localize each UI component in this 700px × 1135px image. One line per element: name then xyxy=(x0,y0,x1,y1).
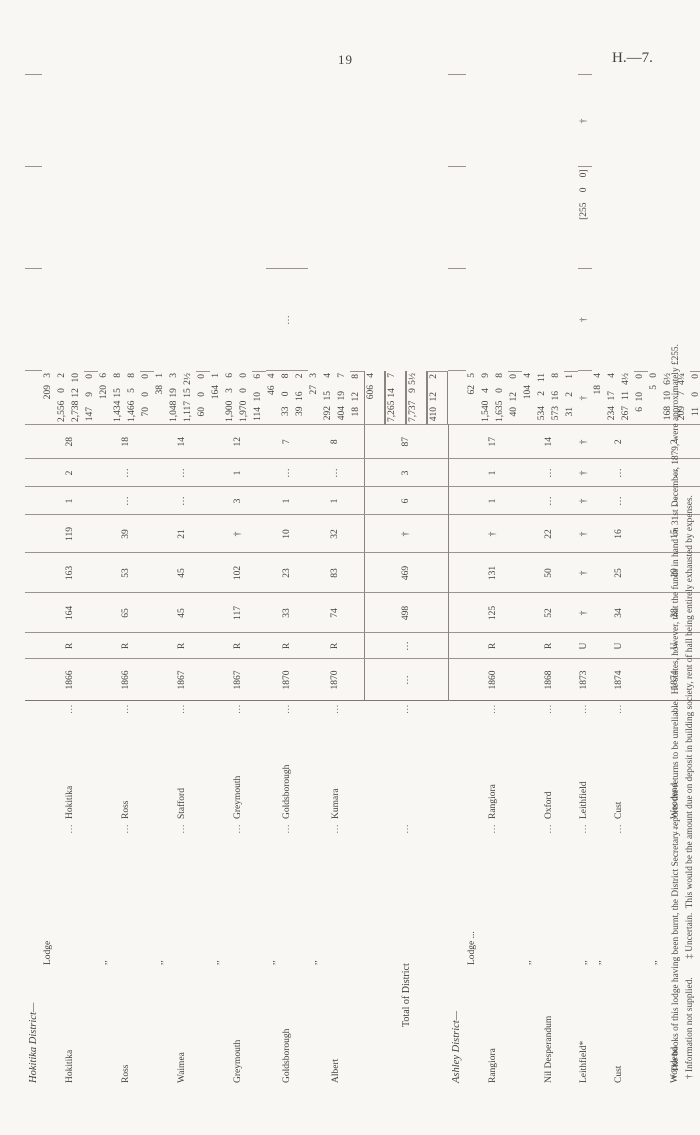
cell: Leithfield*,, xyxy=(578,837,592,1085)
amount-part: 19 xyxy=(336,391,350,406)
cell: 1870 xyxy=(266,659,308,701)
cell: 7,265147 xyxy=(385,371,406,425)
cell: 273 xyxy=(308,371,322,425)
amount-part: 7 xyxy=(336,373,350,391)
amount-part: 10 xyxy=(252,392,266,407)
cell: Cust xyxy=(592,717,648,821)
cell: … xyxy=(308,701,364,717)
cell: 45 xyxy=(154,593,210,633)
amount-part: 104 xyxy=(522,385,536,422)
footnote-symbols: † Information not supplied. ‡ Uncertain.… xyxy=(685,495,695,1079)
cell: 12 xyxy=(210,425,266,459)
cell: 381 xyxy=(154,371,168,425)
footnote-burnt-books: * The books of this lodge having been bu… xyxy=(671,344,681,1079)
amount-part: 404 xyxy=(336,406,350,422)
lodge-row: Ross,,…Ross…1866R655339……1812061,4341581… xyxy=(98,75,154,1085)
cell: 2 xyxy=(42,459,98,487)
cell: Albert,, xyxy=(308,837,364,1085)
cell: Leithfield xyxy=(578,717,592,821)
cell xyxy=(25,371,42,425)
lodge-row: HokitikaLodge…Hokitika…1866R164163119122… xyxy=(42,75,98,1085)
cell xyxy=(25,167,42,269)
cell: Hokitika District— xyxy=(25,837,42,1085)
amount-part: 6 xyxy=(252,374,266,392)
cell: 1860 xyxy=(466,659,522,701)
cell: 3 xyxy=(210,487,266,515)
cell xyxy=(25,701,42,717)
amount-part: 0 xyxy=(578,188,592,203)
cell: … xyxy=(592,487,648,515)
cell: Ross xyxy=(98,717,154,821)
cell: 33 xyxy=(266,593,308,633)
cell xyxy=(448,659,466,701)
amount-part: 4 xyxy=(266,374,280,386)
amount-part: 2 xyxy=(536,391,550,406)
cell: 3121 xyxy=(564,371,578,425)
amount-part: 7,737 xyxy=(407,401,426,422)
cell: 28 xyxy=(42,425,98,459)
lodge-name-suffix: Lodge ... xyxy=(466,931,479,965)
cell: 1866 xyxy=(98,659,154,701)
amount-part: 46 xyxy=(266,386,280,423)
amount-part: 4 xyxy=(606,373,620,391)
amount-part: 0 xyxy=(648,373,662,385)
amount-part: 9 xyxy=(84,392,98,407)
cell: 39 xyxy=(98,515,154,553)
amount-part: 0 xyxy=(494,388,508,401)
cell: 6000 xyxy=(196,371,210,425)
cell xyxy=(448,821,466,837)
cell: U xyxy=(592,633,648,659)
cell: † xyxy=(578,75,592,167)
cell: † xyxy=(466,515,522,553)
amount-part: 60 xyxy=(196,407,210,422)
amount-part: 2 xyxy=(56,373,70,388)
district-header-row: Ashley District— xyxy=(448,75,466,1085)
cell: R xyxy=(308,633,364,659)
cell: 410122 xyxy=(427,371,448,425)
cell: 292154 xyxy=(322,371,336,425)
cell: 74 xyxy=(308,593,364,633)
amount-part: 11 xyxy=(620,391,634,406)
cell: Ross,, xyxy=(98,837,154,1085)
cell xyxy=(25,553,42,593)
cell: … xyxy=(522,821,578,837)
amount-part: 3 xyxy=(308,373,322,385)
cell: 1868 xyxy=(522,659,578,701)
cell: Waimea,, xyxy=(154,837,210,1085)
cell: 7000 xyxy=(140,371,154,425)
cell: 1867 xyxy=(154,659,210,701)
cell: 1,54049 xyxy=(480,371,494,425)
amount-part: 1,970 xyxy=(238,401,252,422)
amount-part: 164 xyxy=(210,385,224,422)
cell: 1866 xyxy=(42,659,98,701)
cell: R xyxy=(466,633,522,659)
cell xyxy=(448,553,466,593)
cell: 1100 xyxy=(690,371,700,425)
cell: 1,46658 xyxy=(126,371,140,425)
cell: 83 xyxy=(308,553,364,593)
cell xyxy=(448,371,466,425)
amount-part: 410 xyxy=(428,407,447,422)
amount-part: 2,738 xyxy=(70,401,84,422)
amount-part: 0 xyxy=(84,374,98,392)
cell: 1870 xyxy=(308,659,364,701)
cell: 1,90036 xyxy=(224,371,238,425)
rotated-table-area: Hokitika District—HokitikaLodge…Hokitika… xyxy=(25,75,700,1085)
cell: 18 xyxy=(98,425,154,459)
lodge-name: Rangiora xyxy=(488,1048,498,1083)
lodge-row: Greymouth,,…Greymouth…1867R117102†311216… xyxy=(210,75,266,1085)
amount-part: 1,048 xyxy=(168,401,182,422)
district-total-row: Total of District…………498469†638760647,26… xyxy=(364,75,448,1085)
lodge-name: Hokitika xyxy=(65,1050,75,1083)
lodge-row: Goldsborough,,…Goldsborough…1870R3323101… xyxy=(266,75,308,1085)
lodge-name-suffix: ,, xyxy=(522,960,535,965)
cell xyxy=(448,717,466,821)
cell xyxy=(448,167,466,269)
lodge-name: Waimea xyxy=(177,1052,187,1083)
lodge-name-suffix: ,, xyxy=(98,960,111,965)
cell xyxy=(448,487,466,515)
amount-part: 8 xyxy=(350,374,364,392)
amount-part: 4 xyxy=(592,373,606,385)
amount-part: 1 xyxy=(564,374,578,392)
document-code: H.—7. xyxy=(612,50,653,67)
lodge-row: Cust,,…Cust…1874U342516……218423417426711… xyxy=(592,75,648,1085)
cell: 184 xyxy=(592,371,606,425)
cell: 16 xyxy=(592,515,648,553)
amount-part: 38 xyxy=(154,385,168,422)
cell: Stafford xyxy=(154,717,210,821)
cell: 6100 xyxy=(634,371,648,425)
cell: 117 xyxy=(210,593,266,633)
cell: † xyxy=(578,487,592,515)
cell: … xyxy=(308,821,364,837)
lodge-row: RangioraLodge ...…Rangiora…1860R125131†1… xyxy=(466,75,522,1085)
cell xyxy=(364,717,448,821)
scanned-document-page: 19 H.—7. Hokitika District—HokitikaLodge… xyxy=(0,0,700,1135)
lodge-row: Nil Desperandum,,…Oxford…1868R525022……14… xyxy=(522,75,578,1085)
cell: † xyxy=(578,459,592,487)
cell: … xyxy=(98,701,154,717)
amount-part: 12 xyxy=(428,392,447,407)
amount-part: 10 xyxy=(634,392,648,407)
cell: R xyxy=(522,633,578,659)
amount-part: 1 xyxy=(210,373,224,385)
amount-part: 27 xyxy=(308,385,322,422)
lodge-name-suffix: ,, xyxy=(648,960,661,965)
cell xyxy=(25,821,42,837)
cell xyxy=(25,75,42,167)
cell: Kumara xyxy=(308,717,364,821)
cell: … xyxy=(42,701,98,717)
cell: † xyxy=(578,553,592,593)
cell: Greymouth xyxy=(210,717,266,821)
cell: 23 xyxy=(266,553,308,593)
cell: R xyxy=(98,633,154,659)
cell: † xyxy=(578,593,592,633)
cell: 234174 xyxy=(606,371,620,425)
cell: 1,63508 xyxy=(494,371,508,425)
cell: … xyxy=(154,701,210,717)
amount-part: 5 xyxy=(466,373,480,385)
amount-part: 0 xyxy=(690,374,700,392)
amount-part: 0 xyxy=(140,374,154,392)
cell: … xyxy=(522,701,578,717)
cell: 1,97000 xyxy=(238,371,252,425)
amount-part: 15 xyxy=(322,391,336,406)
cell xyxy=(448,459,466,487)
cell: 1867 xyxy=(210,659,266,701)
cell: Oxford xyxy=(522,717,578,821)
amount-part: 147 xyxy=(84,407,98,422)
amount-part: 534 xyxy=(536,406,550,422)
cell: HokitikaLodge xyxy=(42,837,98,1085)
amount-part: 4 xyxy=(480,388,494,401)
amount-part: 6 xyxy=(224,373,238,388)
cell: 1873 xyxy=(578,659,592,701)
amount-part: 1,900 xyxy=(224,401,238,422)
cell: … xyxy=(522,459,578,487)
cell: Nil Desperandum,, xyxy=(522,837,578,1085)
amount-part: 267 xyxy=(620,406,634,422)
lodge-name-suffix: ,, xyxy=(578,960,591,965)
cell: 573168 xyxy=(550,371,564,425)
amount-part: 4 xyxy=(322,373,336,391)
amount-part: 4½ xyxy=(620,373,634,391)
cell: 2,55602 xyxy=(56,371,70,425)
cell: † xyxy=(578,269,592,371)
cell: 8 xyxy=(308,425,364,459)
cell: 53 xyxy=(98,553,154,593)
lodge-name-suffix: ,, xyxy=(592,960,605,965)
cell: 1,117152½ xyxy=(182,371,196,425)
amount-part: 114 xyxy=(252,407,266,422)
cell: 114106 xyxy=(252,371,266,425)
cell: 1,048193 xyxy=(168,371,182,425)
cell: 18128 xyxy=(350,371,364,425)
amount-part: 39 xyxy=(294,407,308,423)
amount-part: 8 xyxy=(550,373,564,391)
cell: … xyxy=(266,459,308,487)
cell xyxy=(25,487,42,515)
amount-part: 0 xyxy=(56,388,70,401)
lodge-name: Cust xyxy=(614,1066,624,1083)
cell xyxy=(25,459,42,487)
amount-part: 0 xyxy=(508,374,522,392)
cell: 45 xyxy=(154,553,210,593)
amount-part: 8 xyxy=(280,374,294,392)
district-header-row: Hokitika District— xyxy=(25,75,42,1085)
amount-part: 6 xyxy=(634,407,648,422)
cell: † xyxy=(364,515,448,553)
cell: … xyxy=(466,701,522,717)
cell: … xyxy=(364,701,448,717)
cell: … xyxy=(592,821,648,837)
cell: 14 xyxy=(154,425,210,459)
lodge-name-suffix: ,, xyxy=(308,960,321,965)
amount-part: 2,556 xyxy=(56,401,70,422)
amount-part: 0] xyxy=(578,170,592,188)
cell: … xyxy=(98,487,154,515)
amount-part: 16 xyxy=(294,392,308,407)
lodge-name-suffix: ,, xyxy=(210,960,223,965)
amount-part: 9 xyxy=(407,388,426,401)
cell xyxy=(448,75,466,167)
cell: 50 xyxy=(522,553,578,593)
amount-part: 0 xyxy=(196,374,210,392)
amount-part: 62 xyxy=(466,385,480,422)
amount-part: 573 xyxy=(550,406,564,422)
cell: 65 xyxy=(98,593,154,633)
amount-part: 3 xyxy=(168,373,182,388)
cell: 7 xyxy=(266,425,308,459)
cell: 1874 xyxy=(592,659,648,701)
cell: 40120 xyxy=(508,371,522,425)
cell: 2,7381210 xyxy=(70,371,84,425)
amount-part: 31 xyxy=(564,407,578,422)
cell: 25 xyxy=(592,553,648,593)
amount-part: 3 xyxy=(42,373,56,385)
cell: 1 xyxy=(42,487,98,515)
amount-part: 234 xyxy=(606,406,620,422)
cell: 34 xyxy=(592,593,648,633)
amount-part: 12 xyxy=(350,392,364,407)
amount-part: 6 xyxy=(98,373,112,385)
amount-part: 7,265 xyxy=(386,401,405,422)
amount-part: 2 xyxy=(294,374,308,392)
cell: 87 xyxy=(364,425,448,459)
amount-part: 5 xyxy=(648,385,662,422)
cell: 1044 xyxy=(522,371,536,425)
cell xyxy=(448,593,466,633)
cell: 464 xyxy=(266,372,280,426)
cell: RangioraLodge ... xyxy=(466,837,522,1085)
cell: 32 xyxy=(308,515,364,553)
cell xyxy=(25,593,42,633)
cell: … xyxy=(98,459,154,487)
cell: 1,434158 xyxy=(112,371,126,425)
page-number: 19 xyxy=(338,52,353,68)
cell: 1 xyxy=(210,459,266,487)
cell: … xyxy=(42,821,98,837)
cell: 50 xyxy=(648,371,662,425)
cell: … xyxy=(364,659,448,701)
cell xyxy=(25,633,42,659)
cell: 14790 xyxy=(84,371,98,425)
cell: 52 xyxy=(522,593,578,633)
cell: … xyxy=(266,701,308,717)
cell: 7,73795½ xyxy=(406,371,427,425)
cell: Cust,, xyxy=(592,837,648,1085)
lodges-table-body: Hokitika District—HokitikaLodge…Hokitika… xyxy=(25,75,700,1085)
cell: 3 xyxy=(364,459,448,487)
cell xyxy=(448,515,466,553)
cell: † xyxy=(578,515,592,553)
cell: R xyxy=(42,633,98,659)
amount-part: 2 xyxy=(428,374,447,392)
amount-part: 0 xyxy=(140,392,154,407)
amount-part: 12 xyxy=(70,388,84,401)
cell: [25500] xyxy=(578,168,592,270)
amount-part: 70 xyxy=(140,407,154,422)
amount-part: 8 xyxy=(126,373,140,388)
cell: Goldsborough,, xyxy=(266,837,308,1085)
cell: 163 xyxy=(42,553,98,593)
cell: … xyxy=(266,269,308,371)
amount-part: 4 xyxy=(365,373,384,385)
lodge-name-suffix: ,, xyxy=(154,960,167,965)
amount-part: 3 xyxy=(224,388,238,401)
cell: … xyxy=(466,821,522,837)
amount-part: 1,466 xyxy=(126,401,140,422)
cell: 469 xyxy=(364,553,448,593)
cell: 1 xyxy=(308,487,364,515)
cell: 2093 xyxy=(42,371,56,425)
amount-part: 1,635 xyxy=(494,401,508,422)
cell: 17 xyxy=(466,425,522,459)
amount-part: 120 xyxy=(98,385,112,422)
cell: R xyxy=(266,633,308,659)
amount-part: 18 xyxy=(592,385,606,422)
cell: … xyxy=(592,701,648,717)
amount-part: 0 xyxy=(196,392,210,407)
cell: … xyxy=(522,487,578,515)
lodge-name-suffix: ,, xyxy=(266,960,279,965)
amount-part: 0 xyxy=(634,374,648,392)
lodges-table: Hokitika District—HokitikaLodge…Hokitika… xyxy=(25,75,700,1086)
cell: 625 xyxy=(466,371,480,425)
cell: 119 xyxy=(42,515,98,553)
cell: Greymouth,, xyxy=(210,837,266,1085)
cell: … xyxy=(364,821,448,837)
amount-part: [255 xyxy=(578,203,592,267)
cell xyxy=(25,659,42,701)
cell: … xyxy=(154,487,210,515)
cell: 1 xyxy=(466,487,522,515)
cell: 131 xyxy=(466,553,522,593)
amount-part: 4 xyxy=(522,373,536,385)
cell: 534211 xyxy=(536,371,550,425)
cell: Goldsborough xyxy=(266,717,308,821)
cell: 102 xyxy=(210,553,266,593)
amount-part: 33 xyxy=(280,407,294,423)
cell: 3308 xyxy=(280,372,294,426)
cell: 1641 xyxy=(210,371,224,425)
amount-part: 8 xyxy=(112,373,126,388)
amount-part: 15 xyxy=(182,388,196,401)
amount-part: 5 xyxy=(126,388,140,401)
cell xyxy=(448,269,466,371)
lodge-name: Nil Desperandum xyxy=(544,1016,554,1083)
amount-part: 11 xyxy=(536,373,550,391)
cell: 2 xyxy=(592,425,648,459)
amount-part: 40 xyxy=(508,407,522,422)
amount-part: 18 xyxy=(350,407,364,422)
amount-part: 606 xyxy=(365,385,384,422)
cell: 22 xyxy=(522,515,578,553)
amount-part: 2½ xyxy=(182,373,196,388)
cell: … xyxy=(578,821,592,837)
amount-part: 1,434 xyxy=(112,401,126,422)
amount-part: 11 xyxy=(690,407,700,422)
cell: … xyxy=(210,821,266,837)
lodge-row: Waimea,,…Stafford…1867R454521……143811,04… xyxy=(154,75,210,1085)
amount-part: 5½ xyxy=(407,373,426,388)
cell: 10 xyxy=(266,515,308,553)
